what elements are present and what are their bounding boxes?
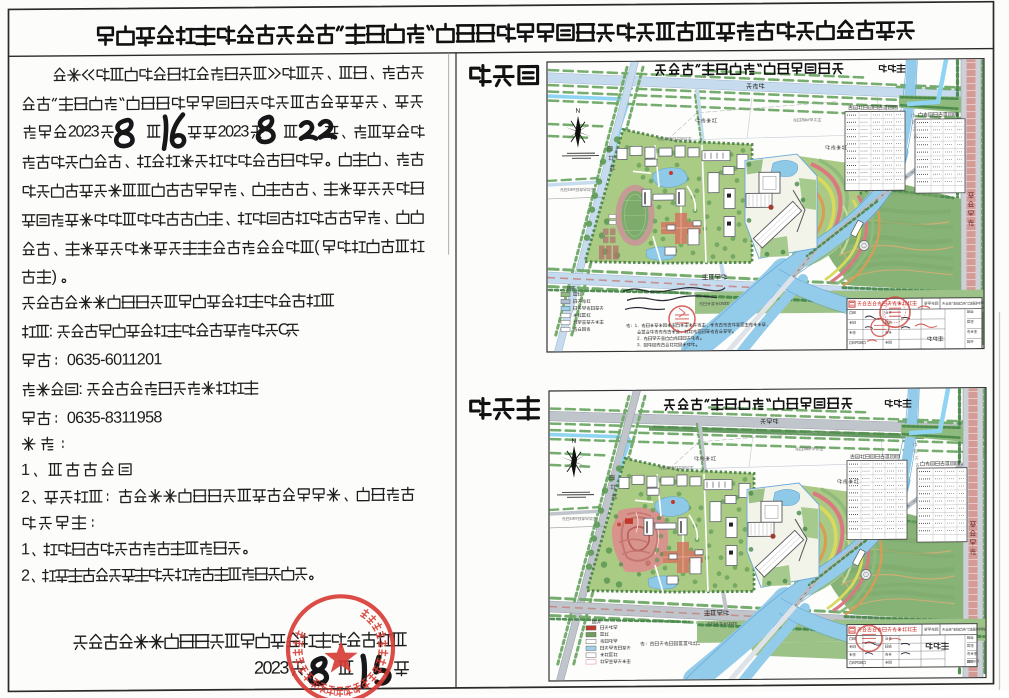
svg-text:2023.07: 2023.07 (967, 659, 979, 663)
svg-text:DN300: DN300 (727, 621, 738, 626)
svg-text:): ) (52, 268, 57, 286)
svg-text::: : (78, 380, 82, 398)
svg-text:(: ( (314, 238, 320, 256)
svg-text:3.: 3. (637, 342, 642, 347)
svg-text:1: 1 (21, 461, 30, 479)
svg-text:0635-8311958: 0635-8311958 (67, 408, 162, 427)
svg-text:1997: 1997 (665, 136, 674, 141)
svg-text:2023: 2023 (68, 122, 100, 140)
svg-text:1.: 1. (635, 323, 640, 328)
svg-text:1997: 1997 (570, 516, 579, 521)
svg-text:2023: 2023 (218, 122, 250, 140)
svg-text:35kV: 35kV (801, 117, 810, 122)
svg-text:2.: 2. (637, 336, 642, 341)
svg-text:2023: 2023 (254, 658, 289, 678)
svg-text:N: N (576, 108, 581, 115)
svg-text:35kV: 35kV (803, 446, 812, 451)
svg-text:C: C (278, 321, 290, 339)
svg-text:1997: 1997 (568, 187, 577, 192)
svg-text:2: 2 (21, 567, 30, 585)
svg-text:N: N (572, 438, 577, 445)
svg-text:1: 1 (21, 540, 30, 558)
svg-text::: : (49, 322, 53, 340)
svg-text:0635-6011201: 0635-6011201 (67, 350, 162, 369)
svg-text:DN300: DN300 (719, 301, 730, 306)
svg-text:2: 2 (21, 488, 30, 506)
svg-text:1997: 1997 (667, 465, 676, 470)
